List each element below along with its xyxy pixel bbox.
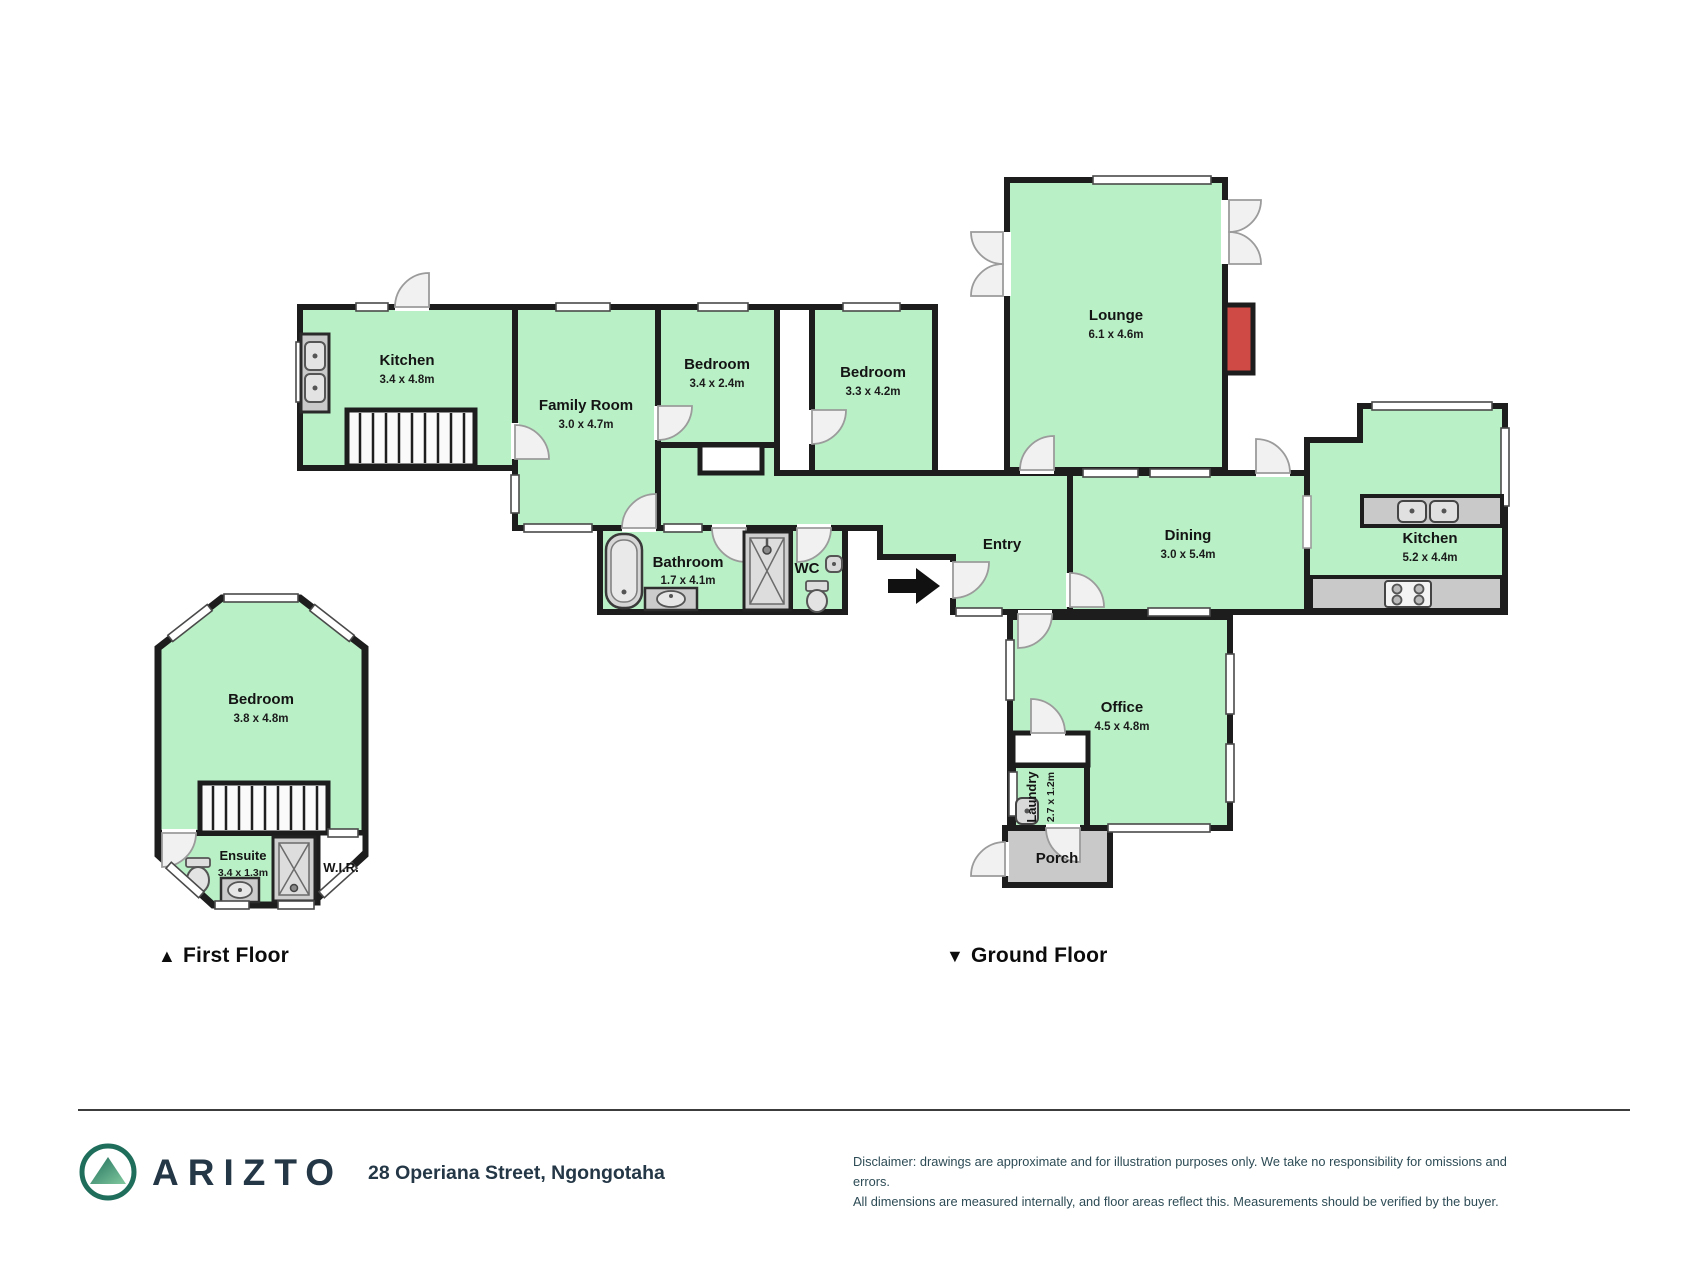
room-dims: 4.5 x 4.8m [1095,721,1150,733]
window [1006,640,1014,700]
brand-logo-icon [78,1142,138,1202]
shower-icon [744,532,790,610]
entry-arrow-icon [888,568,940,604]
room-label: Entry [983,536,1022,553]
room-lounge [1007,180,1225,470]
closet-hall [1013,733,1088,765]
window [698,303,748,311]
room-label: W.I.R. [323,860,358,875]
vanity-sink-icon [221,878,259,902]
ground-rooms [300,180,1505,828]
stove-icon [1311,577,1502,610]
footer-divider [78,1109,1630,1111]
room-label: Kitchen [1402,530,1457,547]
brand-name: ARIZTO [152,1152,343,1194]
bathtub-icon [606,534,642,608]
room-label: WC [795,560,820,577]
window [356,303,388,311]
room-dims: 5.2 x 4.4m [1403,552,1458,564]
window [1372,402,1492,410]
ground-floor-caption-text: Ground Floor [971,944,1108,967]
first-floor-caption: ▲First Floor [158,944,289,968]
island-sink-icon [1362,496,1502,526]
room-label: Bathroom [653,554,724,571]
window [278,901,314,909]
up-triangle-icon: ▲ [158,946,176,966]
room-label: Porch [1036,850,1079,867]
room-label: Office [1101,699,1144,716]
ground-floor-caption: ▼Ground Floor [946,944,1108,968]
room-dims: 3.0 x 4.7m [559,419,614,431]
room-label: Bedroom [228,691,294,708]
disclaimer-text: Disclaimer: drawings are approximate and… [853,1152,1533,1211]
room-label: Bedroom [840,364,906,381]
room-label: Laundry [1024,771,1039,823]
room-label: Ensuite [220,848,267,863]
disclaimer-line-2: All dimensions are measured internally, … [853,1192,1533,1212]
window [224,594,298,602]
window [843,303,900,311]
room-label: Lounge [1089,307,1143,324]
room-dims: 3.4 x 4.8m [380,374,435,386]
room-dims: 3.4 x 2.4m [690,378,745,390]
ground-floor-plan: Kitchen 3.4 x 4.8m Family Room 3.0 x 4.7… [296,176,1509,885]
french-door [971,232,1003,264]
french-door [1229,232,1261,264]
room-label: Family Room [539,397,633,414]
room-family [515,307,658,528]
door [1256,439,1290,473]
vanity-sink-icon [645,588,697,610]
room-dims: 3.4 x 1.3m [218,867,268,879]
fireplace [1225,305,1253,373]
stairs-icon [200,783,328,833]
shower-icon [273,837,315,901]
wc-sink-icon [826,556,842,572]
window [1148,608,1210,616]
down-triangle-icon: ▼ [946,946,964,966]
floorplan-page: Kitchen 3.4 x 4.8m Family Room 3.0 x 4.7… [0,0,1707,1280]
french-door [971,264,1003,296]
room-dims: 3.0 x 5.4m [1161,549,1216,561]
room-dims: 3.3 x 4.2m [846,386,901,398]
window [1226,654,1234,714]
property-address: 28 Operiana Street, Ngongotaha [368,1162,665,1185]
room-label: Kitchen [379,352,434,369]
room-label: Dining [1165,527,1212,544]
window [556,303,610,311]
first-floor-plan: Bedroom 3.8 x 4.8m Ensuite 3.4 x 1.3m W.… [158,594,365,909]
window [524,524,592,532]
chimney-void [777,307,812,473]
disclaimer-line-1: Disclaimer: drawings are approximate and… [853,1152,1533,1192]
window [1093,176,1211,184]
sink-counter-icon [301,334,329,412]
room-dims: 3.8 x 4.8m [234,713,289,725]
room-dims: 6.1 x 4.6m [1089,329,1144,341]
window [1150,469,1210,477]
window [511,475,519,513]
window [1108,824,1210,832]
french-door [1229,200,1261,232]
window [1083,469,1138,477]
window [956,608,1002,616]
closet-bedroom [700,445,762,473]
room-dims: 2.7 x 1.2m [1045,772,1057,822]
window [215,901,249,909]
first-floor-caption-text: First Floor [183,944,289,967]
floor-plan-drawing: Kitchen 3.4 x 4.8m Family Room 3.0 x 4.7… [0,0,1707,1280]
room-label: Bedroom [684,356,750,373]
window [1226,744,1234,802]
door [971,842,1005,876]
toilet-icon [806,581,828,612]
window [664,524,702,532]
door [395,273,429,307]
window [328,829,358,837]
opening [1303,496,1311,548]
stairs-icon [347,410,475,466]
room-dims: 1.7 x 4.1m [661,575,716,587]
